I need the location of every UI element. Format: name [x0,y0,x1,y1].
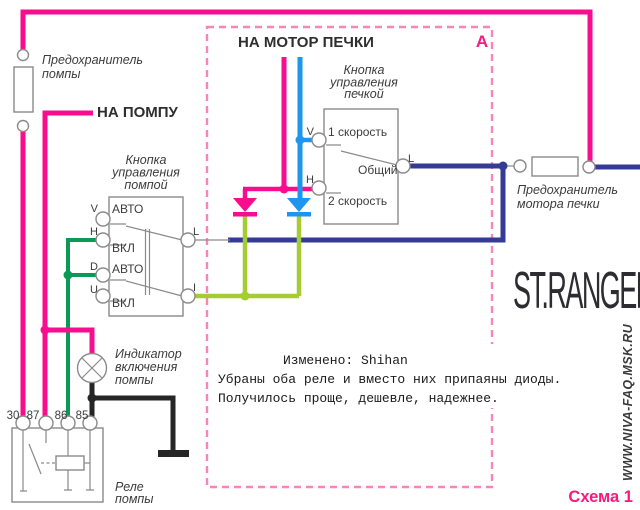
stranger-watermark: ST.RANGER [513,260,640,319]
site-watermark: WWW.NIVA-FAQ.MSK.RU [621,323,635,481]
to-pump-label: НА ПОМПУ [97,104,179,121]
pump-terminal-d-label: D [90,261,98,273]
heater-terminal-h-label: H [306,174,314,186]
pump-fuse-label-line2: помпы [42,67,80,81]
pump-switch-terminal-d [96,268,110,282]
diode2-cathode-bar [287,212,311,217]
pump-fuse-body [14,67,33,112]
diode2-blue [287,198,311,212]
pump-terminal-i-label: I [193,282,196,294]
relay-pin-30-label: 30 [7,410,20,422]
indicator-label-line1: Индикатор [115,347,182,361]
junction-black [88,394,97,403]
junction-chartreuse [241,292,250,301]
pump-switch-terminal-u [96,289,110,303]
pump-fuse-terminal-bottom [18,121,29,132]
junction-green [64,271,73,280]
note-line1: Изменено: Shihan [283,353,408,368]
pump-switch-terminal-h [96,233,110,247]
schema-caption: Схема 1 [568,488,633,506]
wire-black-to-ground [92,398,173,451]
pump-position-auto1: АВТО [112,202,143,216]
note-line3: Получилось проще, дешевле, надежнее. [218,391,499,406]
indicator-label-line3: помпы [115,373,153,387]
heater-switch-terminal-h [312,181,326,195]
wiring-diagram: Предохранитель помпы НА ПОМПУ НА МОТОР П… [0,0,640,510]
pump-position-vkl2: ВКЛ [112,296,135,310]
junction-navy [499,162,508,171]
relay-label-line2: помпы [115,492,153,506]
junction-blue [296,136,305,145]
ground-symbol [158,450,189,457]
relay-pin-86-label: 86 [55,410,68,422]
relay-pin-85-label: 85 [76,410,89,422]
to-heater-motor-label: НА МОТОР ПЕЧКИ [238,34,374,51]
heater-speed1-label: 1 скорость [328,125,387,139]
heater-switch-terminal-v [312,133,326,147]
pump-terminal-v-label: V [91,203,99,215]
heater-fuse-terminal-left [514,160,526,172]
diode1-cathode-bar [233,212,257,217]
pump-terminal-h-label: H [90,226,98,238]
pump-terminal-l-label: L [193,226,199,238]
heater-terminal-v-label: V [307,126,315,138]
pump-fuse-label-line1: Предохранитель [42,53,143,67]
heater-speed2-label: 2 скорость [328,194,387,208]
relay-coil [56,456,84,470]
junction-pink-lamp [41,326,50,335]
diode1-pink [233,198,257,212]
pump-switch-title-line3: помпой [124,178,167,192]
indicator-label-line2: включения [115,360,178,374]
pump-position-auto2: АВТО [112,262,143,276]
junction-pink-diode [280,185,289,194]
heater-terminal-l-label: L [408,153,414,165]
heater-switch-title-line3: печкой [344,87,383,101]
heater-fuse-label-line1: Предохранитель [517,183,618,197]
relay-pin-87-label: 87 [27,410,40,422]
heater-fuse-body [532,157,578,176]
heater-common-label: Общий [358,163,398,177]
relay-pin-87 [39,416,53,430]
heater-fuse-label-line2: мотора печки [517,197,600,211]
pump-position-vkl1: ВКЛ [112,241,135,255]
pump-fuse-terminal-top [18,50,29,61]
heater-fuse-terminal-right [583,161,595,173]
note-line2: Убраны оба реле и вместо них припаяны ди… [218,372,561,387]
pump-terminal-u-label: U [90,284,98,296]
zone-a-label: A [476,32,488,51]
pump-switch-terminal-v [96,212,110,226]
